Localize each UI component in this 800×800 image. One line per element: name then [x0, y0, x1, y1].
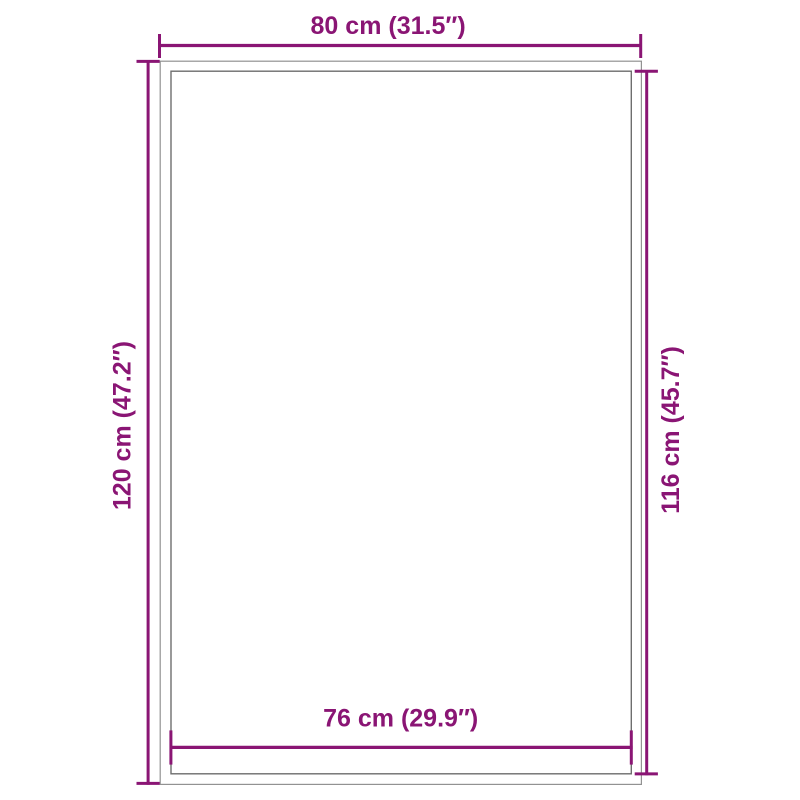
- svg-text:80 cm (31.5″): 80 cm (31.5″): [311, 12, 466, 40]
- svg-text:120 cm (47.2″): 120 cm (47.2″): [109, 341, 137, 510]
- svg-text:116 cm (45.7″): 116 cm (45.7″): [657, 346, 685, 514]
- svg-text:76 cm (29.9″): 76 cm (29.9″): [323, 704, 478, 732]
